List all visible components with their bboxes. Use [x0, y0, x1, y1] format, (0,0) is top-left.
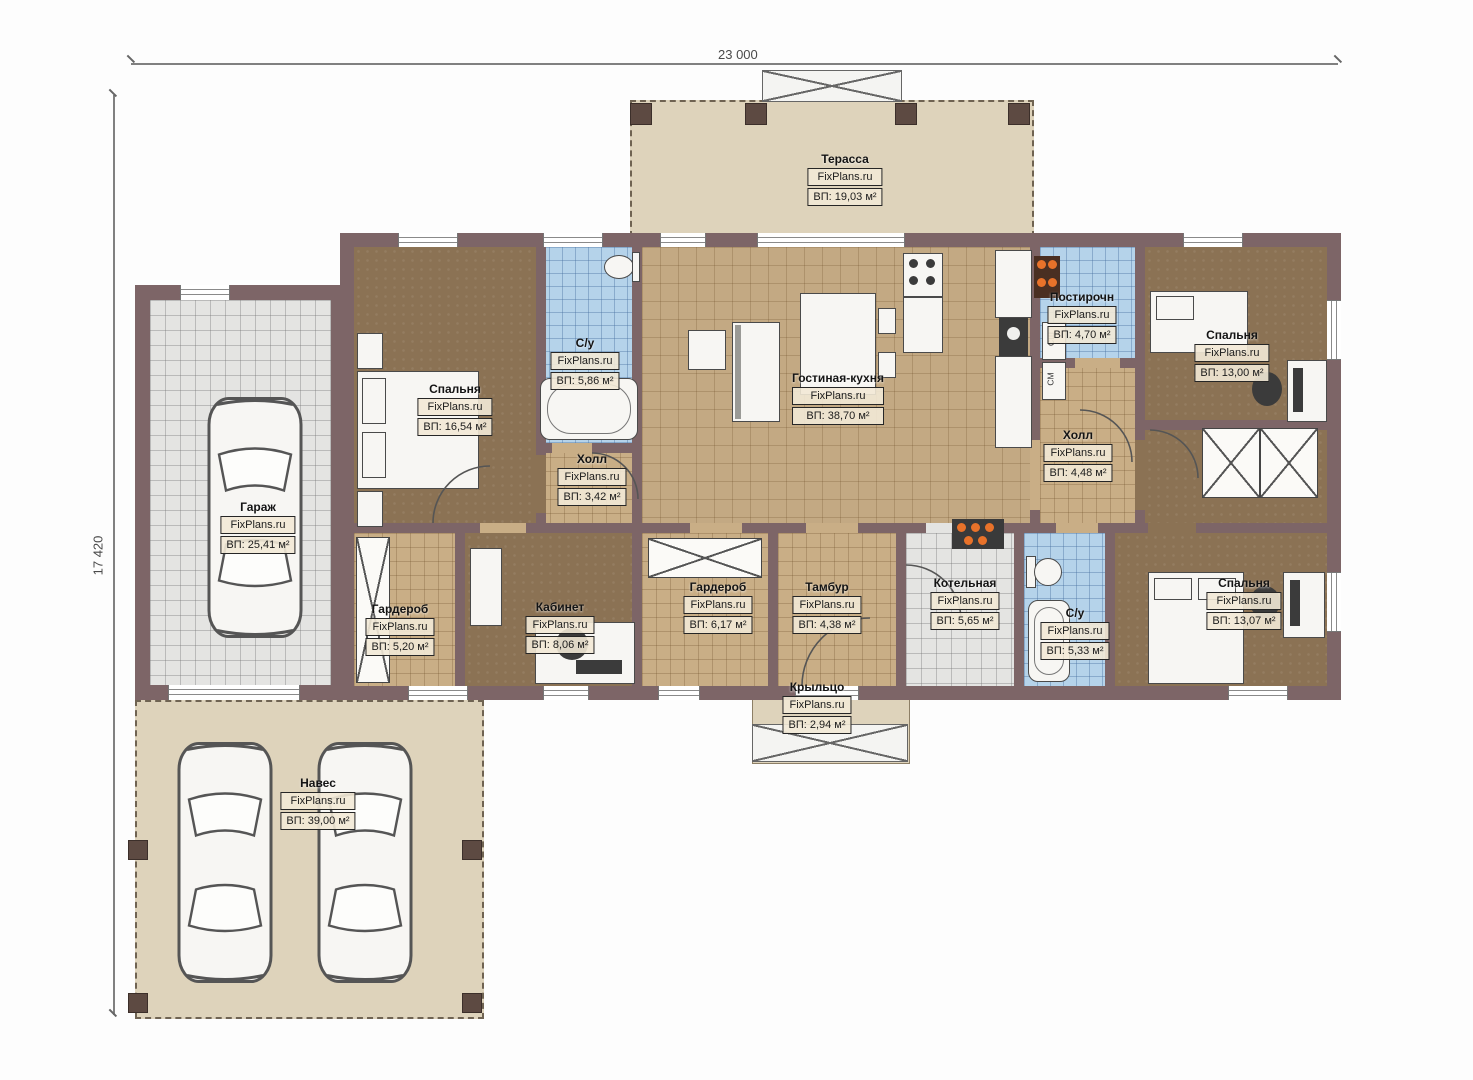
room-label-bedroom-top-right: Спальня FixPlans.ru ВП: 13,00 м²: [1194, 328, 1269, 382]
room-area: ВП: 13,00 м²: [1194, 364, 1269, 382]
interior-wall: [896, 533, 906, 686]
room-area: ВП: 16,54 м²: [417, 418, 492, 436]
pillow-icon: [362, 432, 386, 478]
watermark: FixPlans.ru: [1040, 622, 1109, 640]
burner-icon: [926, 259, 935, 268]
wardrobe-icon: [1260, 428, 1318, 498]
room-area: ВП: 39,00 м²: [280, 812, 355, 830]
floor-plan: 23 000 17 420: [0, 0, 1473, 1080]
terrace-stairs: [762, 70, 902, 102]
burner-icon: [926, 276, 935, 285]
toilet-icon: [1034, 558, 1062, 586]
door-opening: [1075, 358, 1120, 368]
room-name: Спальня: [1206, 576, 1281, 590]
watermark: FixPlans.ru: [365, 618, 434, 636]
terrace-post: [1008, 103, 1030, 125]
room-area: ВП: 2,94 м²: [782, 716, 851, 734]
window: [1183, 233, 1243, 247]
watermark: FixPlans.ru: [417, 398, 492, 416]
room-area: ВП: 25,41 м²: [220, 536, 295, 554]
room-area: ВП: 19,03 м²: [807, 188, 882, 206]
room-name: С/у: [1040, 606, 1109, 620]
watermark: FixPlans.ru: [792, 596, 861, 614]
garage-wall-right: [331, 285, 341, 700]
interior-wall: [455, 533, 465, 686]
room-label-living-kitchen: Гостиная-кухня FixPlans.ru ВП: 38,70 м²: [792, 371, 884, 425]
interior-wall: [1014, 533, 1024, 686]
watermark: FixPlans.ru: [782, 696, 851, 714]
monitor-icon: [1290, 580, 1300, 626]
window: [543, 233, 603, 247]
boiler-flame-icon: [978, 536, 987, 545]
room-name: Постирочн: [1047, 290, 1116, 304]
burner-flame-icon: [1048, 260, 1057, 269]
room-label-wardrobe-center: Гардероб FixPlans.ru ВП: 6,17 м²: [683, 580, 752, 634]
door-opening: [1148, 523, 1196, 533]
pillow-icon: [1156, 296, 1194, 320]
room-area: ВП: 13,07 м²: [1206, 612, 1281, 630]
boiler-flame-icon: [957, 523, 966, 532]
dimension-tick: [127, 55, 135, 63]
room-name: Холл: [557, 452, 626, 466]
room-label-laundry: Постирочн FixPlans.ru ВП: 4,70 м²: [1047, 290, 1116, 344]
garage-gate: [168, 685, 300, 700]
watermark: FixPlans.ru: [220, 516, 295, 534]
watermark: FixPlans.ru: [550, 352, 619, 370]
kitchen-counter-icon: [995, 356, 1032, 448]
left-dimension-line: [113, 95, 115, 1015]
burner-icon: [909, 259, 918, 268]
nightstand-icon: [357, 333, 383, 369]
burner-flame-icon: [1048, 278, 1057, 287]
terrace-post: [745, 103, 767, 125]
room-label-hall-right: Холл FixPlans.ru ВП: 4,48 м²: [1043, 428, 1112, 482]
door-opening: [1135, 440, 1145, 510]
room-area: ВП: 4,48 м²: [1043, 464, 1112, 482]
canopy-post: [128, 840, 148, 860]
window: [180, 285, 230, 300]
interior-wall: [768, 533, 778, 686]
room-name: Спальня: [417, 382, 492, 396]
room-label-garage: Гараж FixPlans.ru ВП: 25,41 м²: [220, 500, 295, 554]
window: [658, 686, 700, 700]
boiler-flame-icon: [985, 523, 994, 532]
coffee-table-icon: [688, 330, 726, 370]
kitchen-counter-icon: [903, 297, 943, 353]
room-name: Гараж: [220, 500, 295, 514]
top-dimension-line: [131, 63, 1338, 65]
room-area: ВП: 4,70 м²: [1047, 326, 1116, 344]
room-label-porch: Крыльцо FixPlans.ru ВП: 2,94 м²: [782, 680, 851, 734]
wardrobe-icon: [1202, 428, 1260, 498]
room-name: Холл: [1043, 428, 1112, 442]
window: [1327, 572, 1341, 632]
window: [1327, 300, 1341, 360]
house-wall-left: [340, 233, 354, 700]
room-label-hall-left: Холл FixPlans.ru ВП: 3,42 м²: [557, 452, 626, 506]
watermark: FixPlans.ru: [683, 596, 752, 614]
room-label-bathroom-top: С/у FixPlans.ru ВП: 5,86 м²: [550, 336, 619, 390]
room-area: ВП: 4,38 м²: [792, 616, 861, 634]
pillow-icon: [362, 378, 386, 424]
room-name: Гостиная-кухня: [792, 371, 884, 385]
watermark: FixPlans.ru: [1206, 592, 1281, 610]
boiler-flame-icon: [964, 536, 973, 545]
room-name: Крыльцо: [782, 680, 851, 694]
room-area: ВП: 8,06 м²: [525, 636, 594, 654]
car-icon: [315, 735, 415, 990]
nightstand-icon: [357, 491, 383, 527]
burner-flame-icon: [1037, 278, 1046, 287]
terrace-post: [895, 103, 917, 125]
washer-label: СМ: [1046, 372, 1056, 385]
room-label-bedroom-bottom-right: Спальня FixPlans.ru ВП: 13,07 м²: [1206, 576, 1281, 630]
room-area: ВП: 38,70 м²: [792, 407, 884, 425]
garage-wall-top: [135, 285, 345, 300]
chair-icon: [878, 308, 896, 334]
room-area: ВП: 5,86 м²: [550, 372, 619, 390]
room-name: С/у: [550, 336, 619, 350]
watermark: FixPlans.ru: [930, 592, 999, 610]
toilet-tank-icon: [632, 252, 640, 282]
monitor-icon: [1293, 368, 1303, 412]
room-label-vestibule: Тамбур FixPlans.ru ВП: 4,38 м²: [792, 580, 861, 634]
car-icon: [175, 735, 275, 990]
room-label-bedroom-left: Спальня FixPlans.ru ВП: 16,54 м²: [417, 382, 492, 436]
window: [1228, 686, 1288, 700]
terrace-post: [630, 103, 652, 125]
toilet-icon: [604, 255, 634, 279]
wardrobe-icon: [648, 538, 762, 578]
room-name: Тамбур: [792, 580, 861, 594]
cabinet-icon: [470, 548, 502, 626]
room-area: ВП: 5,20 м²: [365, 638, 434, 656]
stove-icon: [903, 253, 943, 297]
burner-flame-icon: [1037, 260, 1046, 269]
kitchen-counter-icon: [995, 250, 1032, 318]
room-name: Гардероб: [365, 602, 434, 616]
door-opening: [806, 523, 858, 533]
door-opening: [690, 523, 742, 533]
room-area: ВП: 5,65 м²: [930, 612, 999, 630]
window: [408, 686, 468, 700]
watermark: FixPlans.ru: [1047, 306, 1116, 324]
garage-wall-left: [135, 285, 150, 700]
room-name: Навес: [280, 776, 355, 790]
room-name: Спальня: [1194, 328, 1269, 342]
watermark: FixPlans.ru: [792, 387, 884, 405]
boiler-flame-icon: [971, 523, 980, 532]
canopy-post: [462, 840, 482, 860]
watermark: FixPlans.ru: [1194, 344, 1269, 362]
room-label-office: Кабинет FixPlans.ru ВП: 8,06 м²: [525, 600, 594, 654]
dimension-tick: [1334, 55, 1342, 63]
bathtub-basin-icon: [547, 384, 631, 434]
passage-opening: [1030, 440, 1040, 510]
room-area: ВП: 5,33 м²: [1040, 642, 1109, 660]
watermark: FixPlans.ru: [807, 168, 882, 186]
room-area: ВП: 3,42 м²: [557, 488, 626, 506]
canopy-post: [128, 993, 148, 1013]
watermark: FixPlans.ru: [1043, 444, 1112, 462]
room-label-terrace: Терасса FixPlans.ru ВП: 19,03 м²: [807, 152, 882, 206]
monitor-icon: [576, 660, 622, 674]
watermark: FixPlans.ru: [280, 792, 355, 810]
window: [398, 233, 458, 247]
door-opening: [480, 523, 526, 533]
door-opening: [1056, 523, 1098, 533]
sink-basin-icon: [1007, 327, 1020, 340]
pillow-icon: [1154, 578, 1192, 600]
terrace-door: [757, 233, 905, 247]
window: [543, 686, 589, 700]
window: [660, 233, 706, 247]
watermark: FixPlans.ru: [557, 468, 626, 486]
room-name: Гардероб: [683, 580, 752, 594]
room-area: ВП: 6,17 м²: [683, 616, 752, 634]
room-name: Котельная: [930, 576, 999, 590]
watermark: FixPlans.ru: [525, 616, 594, 634]
height-dimension-label: 17 420: [90, 536, 105, 576]
room-name: Кабинет: [525, 600, 594, 614]
room-label-boiler-room: Котельная FixPlans.ru ВП: 5,65 м²: [930, 576, 999, 630]
width-dimension-label: 23 000: [718, 47, 758, 62]
room-name: Терасса: [807, 152, 882, 166]
door-opening: [536, 455, 546, 513]
room-label-canopy: Навес FixPlans.ru ВП: 39,00 м²: [280, 776, 355, 830]
canopy-post: [462, 993, 482, 1013]
room-label-bathroom-bottom: С/у FixPlans.ru ВП: 5,33 м²: [1040, 606, 1109, 660]
room-label-wardrobe-left: Гардероб FixPlans.ru ВП: 5,20 м²: [365, 602, 434, 656]
sofa-back-icon: [735, 325, 741, 419]
burner-icon: [909, 276, 918, 285]
